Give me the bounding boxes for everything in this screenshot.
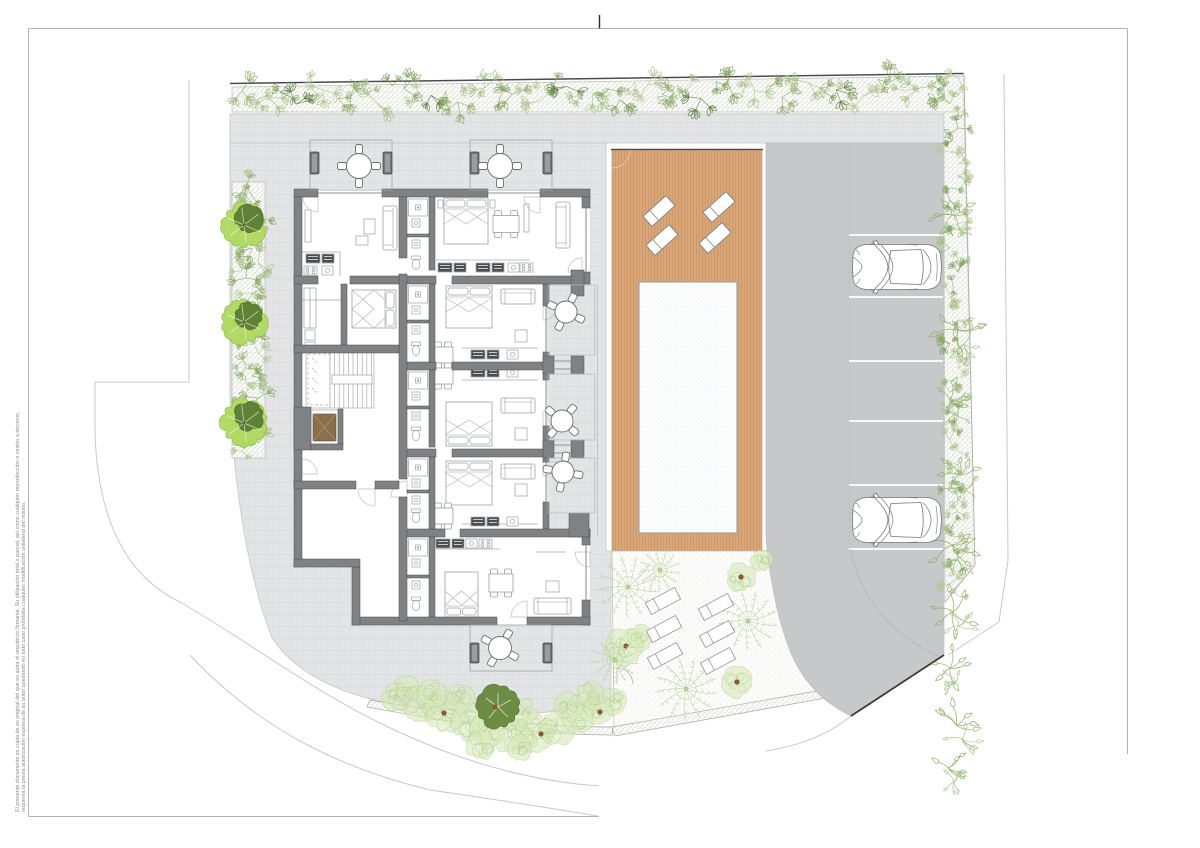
svg-text:requerirá la previa autorizaci: requerirá la previa autorización expresa… <box>21 502 27 812</box>
